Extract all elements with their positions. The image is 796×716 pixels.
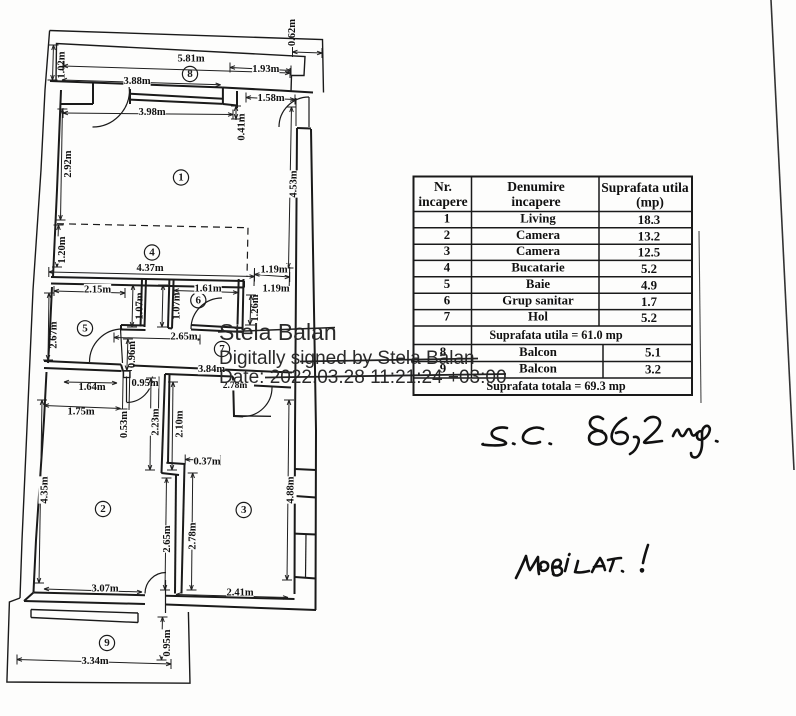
svg-text:1.7: 1.7: [641, 295, 658, 309]
svg-text:2.65m: 2.65m: [162, 525, 173, 552]
svg-text:2: 2: [100, 503, 106, 515]
svg-text:1.19m: 1.19m: [262, 283, 289, 294]
svg-text:3.98m: 3.98m: [138, 107, 165, 118]
svg-text:3: 3: [444, 244, 450, 258]
svg-text:5.2: 5.2: [641, 311, 657, 325]
svg-text:3.88m: 3.88m: [123, 76, 150, 87]
svg-text:8: 8: [187, 68, 193, 80]
svg-text:5.1: 5.1: [645, 345, 661, 359]
svg-text:7: 7: [444, 310, 451, 324]
svg-text:0.37m: 0.37m: [193, 456, 220, 467]
svg-text:2.65m: 2.65m: [170, 331, 197, 342]
svg-text:4.35m: 4.35m: [39, 476, 50, 503]
svg-text:1.64m: 1.64m: [78, 382, 105, 393]
svg-text:5: 5: [82, 322, 88, 334]
svg-text:Suprafata utila: Suprafata utila: [601, 180, 689, 195]
svg-text:6: 6: [196, 294, 202, 306]
svg-text:incapere: incapere: [511, 194, 560, 209]
svg-text:Bucatarie: Bucatarie: [511, 261, 565, 275]
svg-text:Camera: Camera: [516, 244, 561, 258]
svg-text:5: 5: [444, 277, 450, 291]
svg-text:incapere: incapere: [418, 194, 467, 209]
svg-text:2.78m: 2.78m: [187, 522, 198, 549]
svg-text:1.19m: 1.19m: [260, 264, 287, 275]
svg-text:Baie: Baie: [526, 277, 550, 291]
svg-text:(mp): (mp): [636, 195, 664, 210]
svg-text:6: 6: [444, 293, 451, 307]
svg-text:13.2: 13.2: [638, 229, 660, 243]
svg-text:0.53m: 0.53m: [119, 411, 130, 438]
svg-text:1.93m: 1.93m: [252, 64, 279, 75]
svg-text:4: 4: [149, 247, 155, 259]
svg-text:18.3: 18.3: [638, 213, 660, 227]
svg-text:0.96m: 0.96m: [127, 341, 138, 368]
svg-text:Balcon: Balcon: [519, 345, 557, 359]
svg-text:2: 2: [444, 228, 450, 242]
svg-text:1.26m: 1.26m: [250, 294, 261, 321]
svg-text:3.34m: 3.34m: [81, 656, 108, 667]
svg-text:2.67m: 2.67m: [48, 321, 59, 348]
svg-text:3: 3: [241, 504, 247, 516]
svg-text:12.5: 12.5: [638, 246, 660, 260]
svg-text:1.58m: 1.58m: [257, 93, 284, 104]
svg-text:4: 4: [444, 261, 451, 275]
svg-text:1.20m: 1.20m: [57, 236, 68, 263]
svg-text:Suprafata totala = 69.3 mp: Suprafata totala = 69.3 mp: [486, 379, 626, 393]
svg-text:1.61m: 1.61m: [194, 283, 221, 294]
svg-text:1: 1: [178, 172, 184, 184]
svg-text:0.62m: 0.62m: [287, 19, 298, 46]
svg-text:3.07m: 3.07m: [91, 583, 118, 594]
svg-text:1.07m: 1.07m: [134, 292, 145, 319]
svg-text:Suprafata utila = 61.0 mp: Suprafata utila = 61.0 mp: [489, 328, 622, 342]
svg-text:4.53m: 4.53m: [288, 170, 299, 197]
svg-text:0.95m: 0.95m: [131, 378, 158, 389]
svg-text:0.41m: 0.41m: [236, 113, 247, 140]
svg-text:Living: Living: [520, 212, 556, 226]
svg-text:Camera: Camera: [516, 228, 561, 242]
svg-text:2.10m: 2.10m: [174, 410, 185, 437]
svg-text:4.37m: 4.37m: [136, 263, 163, 274]
svg-text:Denumire: Denumire: [507, 179, 565, 194]
svg-text:1: 1: [444, 212, 450, 226]
svg-text:3.2: 3.2: [645, 362, 661, 376]
svg-text:Grup sanitar: Grup sanitar: [502, 293, 574, 307]
svg-text:9: 9: [104, 637, 110, 649]
svg-text:0.95m: 0.95m: [162, 629, 173, 656]
svg-text:4.88m: 4.88m: [285, 476, 296, 503]
svg-text:2.92m: 2.92m: [63, 150, 74, 177]
svg-text:Hol: Hol: [528, 310, 548, 324]
svg-text:2.23m: 2.23m: [150, 408, 161, 435]
svg-text:4.9: 4.9: [641, 278, 657, 292]
svg-text:1.02m: 1.02m: [56, 51, 67, 78]
svg-text:Nr.: Nr.: [434, 179, 452, 194]
svg-text:1.07m: 1.07m: [171, 292, 182, 319]
svg-text:Balcon: Balcon: [519, 361, 557, 375]
svg-text:Date: 2022.03.28 11:21:24 +03:: Date: 2022.03.28 11:21:24 +03:00: [219, 367, 507, 388]
svg-text:5.2: 5.2: [641, 262, 657, 276]
svg-text:5.81m: 5.81m: [177, 53, 204, 64]
svg-text:1.75m: 1.75m: [67, 406, 94, 417]
svg-text:2.15m: 2.15m: [84, 284, 111, 295]
